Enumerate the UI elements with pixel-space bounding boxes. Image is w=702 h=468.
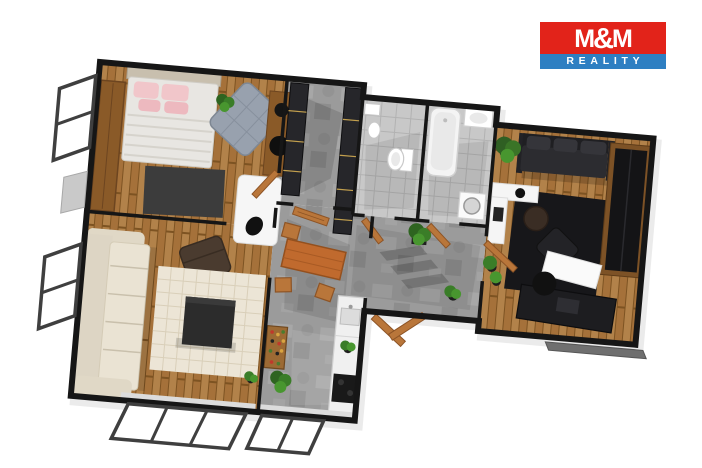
bedroom-rug <box>141 163 227 221</box>
toilet <box>387 147 414 171</box>
office-sofa <box>516 133 616 186</box>
logo-subtitle: REALITY <box>562 56 645 67</box>
logo-title: M&M <box>574 24 632 53</box>
washing-machine <box>458 192 486 220</box>
mm-reality-logo: M&M REALITY <box>540 22 666 69</box>
window-sill-ledge <box>61 169 88 215</box>
wine-shelf <box>264 326 288 370</box>
screenshot-canvas: M&M REALITY <box>0 0 702 468</box>
window-kitchen-bottom <box>247 414 324 454</box>
floor-plan-render <box>0 0 702 468</box>
double-bed <box>120 64 222 168</box>
bathtub <box>425 107 461 177</box>
dining-stool <box>275 278 291 292</box>
logo-reality-box: REALITY <box>540 54 666 69</box>
logo-mm-box: M&M <box>540 22 666 54</box>
